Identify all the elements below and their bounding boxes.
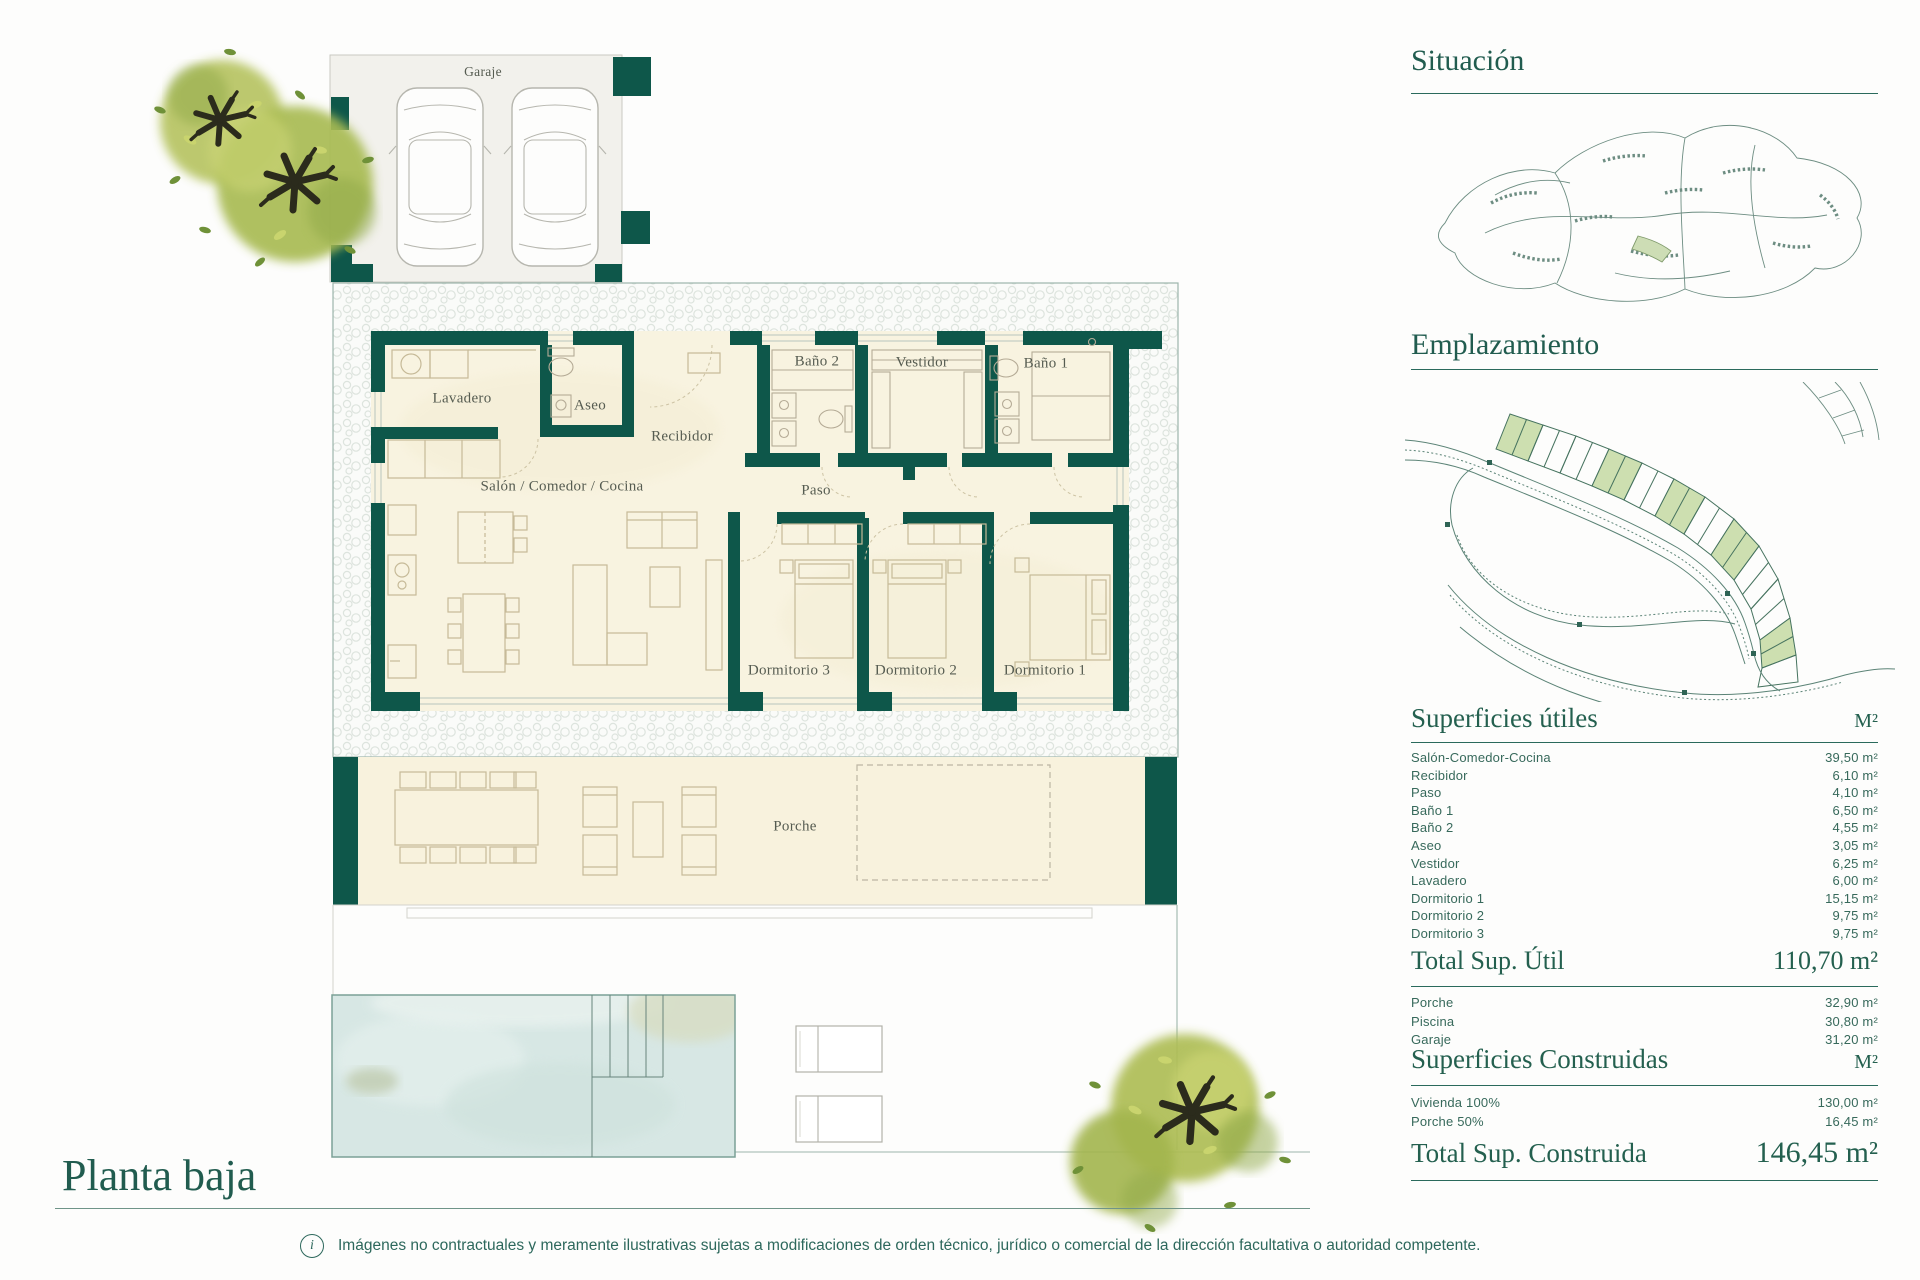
table-row: Salón-Comedor-Cocina39,50 m² xyxy=(1411,749,1878,767)
page-title: Planta baja xyxy=(62,1150,256,1201)
garage-plan xyxy=(330,55,651,282)
footer-disclaimer: i Imágenes no contractuales y meramente … xyxy=(300,1234,1480,1258)
total-construida-value: 146,45 m² xyxy=(1756,1136,1878,1170)
table-row: Dormitorio 29,75 m² xyxy=(1411,907,1878,925)
table-row: Baño 16,50 m² xyxy=(1411,802,1878,820)
room-label-bano2: Baño 2 xyxy=(795,354,840,371)
construidas-unit: M² xyxy=(1854,1051,1878,1074)
table-row: Dormitorio 39,75 m² xyxy=(1411,925,1878,943)
situacion-rule xyxy=(1411,93,1878,94)
table-row: Baño 24,55 m² xyxy=(1411,819,1878,837)
room-label-lavadero: Lavadero xyxy=(432,391,491,408)
total-util-label: Total Sup. Útil xyxy=(1411,946,1564,976)
room-label-garaje: Garaje xyxy=(464,64,502,80)
floorplan-page: Garaje Lavadero Aseo Recibidor Salón / C… xyxy=(0,0,1920,1280)
utiles-rule xyxy=(1411,742,1878,743)
table-row: Recibidor6,10 m² xyxy=(1411,767,1878,785)
table-row: Aseo3,05 m² xyxy=(1411,837,1878,855)
situacion-title: Situación xyxy=(1411,44,1524,78)
total-util-rule xyxy=(1411,986,1878,987)
emplazamiento-map xyxy=(1405,382,1895,702)
total-util-value: 110,70 m² xyxy=(1773,946,1878,976)
utiles-header: Superficies útiles M² xyxy=(1411,703,1878,734)
room-label-salon: Salón / Comedor / Cocina xyxy=(480,479,643,496)
emplazamiento-rule xyxy=(1411,369,1878,370)
construidas-table: Vivienda 100%130,00 m² Porche 50%16,45 m… xyxy=(1411,1094,1878,1131)
table-row: Dormitorio 115,15 m² xyxy=(1411,890,1878,908)
table-row: Piscina30,80 m² xyxy=(1411,1013,1878,1032)
terrace-lines xyxy=(333,905,1177,995)
room-label-dormitorio2: Dormitorio 2 xyxy=(875,663,957,680)
utiles-unit: M² xyxy=(1854,710,1878,733)
emplazamiento-title: Emplazamiento xyxy=(1411,328,1599,362)
utiles-title: Superficies útiles xyxy=(1411,703,1598,734)
porch xyxy=(333,757,1177,905)
extras-table: Porche32,90 m² Piscina30,80 m² Garaje31,… xyxy=(1411,994,1878,1050)
table-row: Paso4,10 m² xyxy=(1411,784,1878,802)
title-rule xyxy=(55,1208,1310,1209)
room-label-vestidor: Vestidor xyxy=(896,355,948,372)
room-label-dormitorio1: Dormitorio 1 xyxy=(1004,663,1086,680)
table-row: Porche 50%16,45 m² xyxy=(1411,1113,1878,1132)
room-label-recibidor: Recibidor xyxy=(651,429,713,446)
construidas-rule xyxy=(1411,1085,1878,1086)
tree-bottom xyxy=(1070,1034,1292,1234)
disclaimer-text: Imágenes no contractuales y meramente il… xyxy=(338,1237,1480,1255)
utiles-table: Salón-Comedor-Cocina39,50 m² Recibidor6,… xyxy=(1411,749,1878,943)
room-label-aseo: Aseo xyxy=(574,398,606,415)
total-util-row: Total Sup. Útil 110,70 m² xyxy=(1411,946,1878,976)
construidas-title: Superficies Construidas xyxy=(1411,1044,1668,1075)
total-construida-rule xyxy=(1411,1180,1878,1181)
table-row: Lavadero6,00 m² xyxy=(1411,872,1878,890)
table-row: Vivienda 100%130,00 m² xyxy=(1411,1094,1878,1113)
sun-lounger xyxy=(796,1096,882,1142)
construidas-header: Superficies Construidas M² xyxy=(1411,1044,1878,1075)
room-label-bano1: Baño 1 xyxy=(1024,356,1069,373)
pool xyxy=(332,979,752,1157)
info-icon: i xyxy=(300,1234,324,1258)
sun-lounger xyxy=(796,1026,882,1072)
car-icon xyxy=(504,88,606,266)
room-label-paso: Paso xyxy=(801,483,831,500)
car-icon xyxy=(389,88,491,266)
situacion-map xyxy=(1425,103,1885,317)
total-construida-label: Total Sup. Construida xyxy=(1411,1138,1647,1169)
total-construida-row: Total Sup. Construida 146,45 m² xyxy=(1411,1136,1878,1170)
room-label-porche: Porche xyxy=(773,819,816,836)
room-label-dormitorio3: Dormitorio 3 xyxy=(748,663,830,680)
table-row: Porche32,90 m² xyxy=(1411,994,1878,1013)
table-row: Vestidor6,25 m² xyxy=(1411,855,1878,873)
